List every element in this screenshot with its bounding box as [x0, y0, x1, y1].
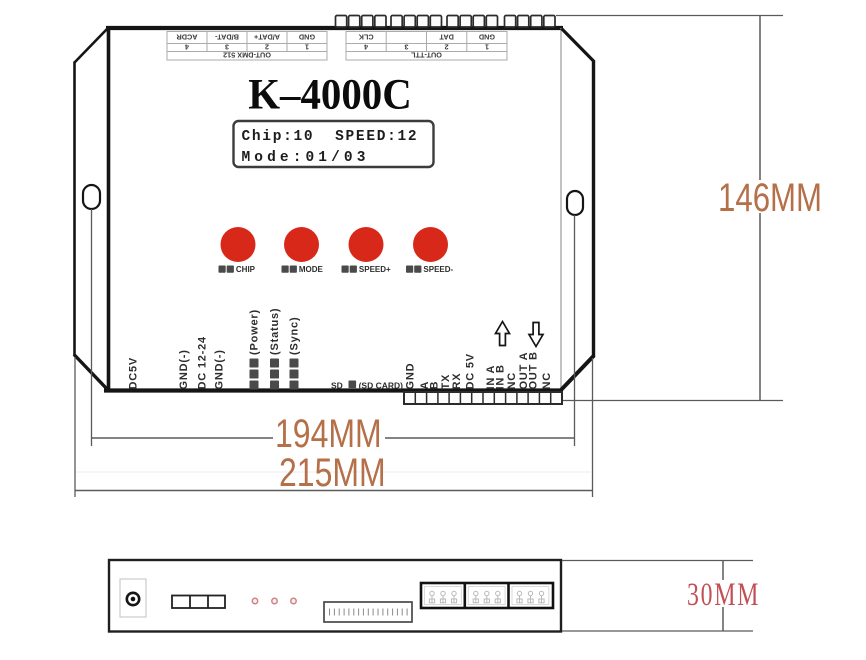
svg-text:CHIP: CHIP: [236, 265, 256, 274]
svg-text:MODE: MODE: [299, 265, 324, 274]
svg-text:(SD CARD): (SD CARD): [359, 381, 404, 391]
svg-text:GND: GND: [405, 363, 417, 390]
svg-text:DC 5V: DC 5V: [465, 353, 477, 389]
svg-text:OUT-TTL: OUT-TTL: [411, 51, 442, 60]
svg-text:Mode:01/03: Mode:01/03: [242, 150, 370, 166]
svg-text:ACDR: ACDR: [176, 33, 198, 42]
svg-text:OUT B: OUT B: [528, 351, 540, 389]
svg-text:GND(-): GND(-): [178, 349, 190, 389]
svg-text:1: 1: [485, 43, 489, 52]
svg-text:30MM: 30MM: [687, 576, 760, 613]
svg-text:GND: GND: [479, 33, 495, 42]
svg-text:GND(-): GND(-): [214, 349, 226, 389]
svg-text:Chip:10 SPEED:12: Chip:10 SPEED:12: [242, 129, 419, 145]
svg-text:CLK: CLK: [358, 33, 374, 42]
svg-text:2: 2: [445, 43, 449, 52]
svg-text:215MM: 215MM: [279, 450, 386, 495]
svg-text:3: 3: [225, 43, 229, 52]
svg-text:K–4000C: K–4000C: [248, 70, 412, 118]
svg-text:1: 1: [305, 43, 309, 52]
svg-text:(Status): (Status): [269, 308, 281, 355]
svg-text:SPEED-: SPEED-: [423, 265, 453, 274]
svg-text:(Sync): (Sync): [289, 317, 301, 355]
svg-text:B: B: [429, 381, 441, 390]
svg-text:NC: NC: [506, 372, 518, 390]
svg-text:(Power): (Power): [249, 309, 261, 355]
svg-text:A/DAT+: A/DAT+: [254, 33, 280, 42]
svg-text:OUT-DMX 512: OUT-DMX 512: [223, 51, 271, 60]
svg-text:146MM: 146MM: [718, 175, 822, 220]
svg-text:IN B: IN B: [495, 364, 507, 389]
svg-text:2: 2: [265, 43, 269, 52]
svg-text:B/DAT-: B/DAT-: [215, 33, 239, 42]
svg-text:RX: RX: [451, 373, 463, 390]
svg-text:DC5V: DC5V: [128, 357, 140, 390]
svg-text:SD: SD: [331, 381, 343, 391]
svg-text:NC: NC: [541, 372, 553, 390]
svg-text:GND: GND: [299, 33, 315, 42]
svg-text:SPEED+: SPEED+: [359, 265, 391, 274]
svg-text:DAT: DAT: [439, 33, 454, 42]
svg-text:DC 12-24: DC 12-24: [197, 336, 209, 390]
svg-text:3: 3: [404, 43, 408, 52]
